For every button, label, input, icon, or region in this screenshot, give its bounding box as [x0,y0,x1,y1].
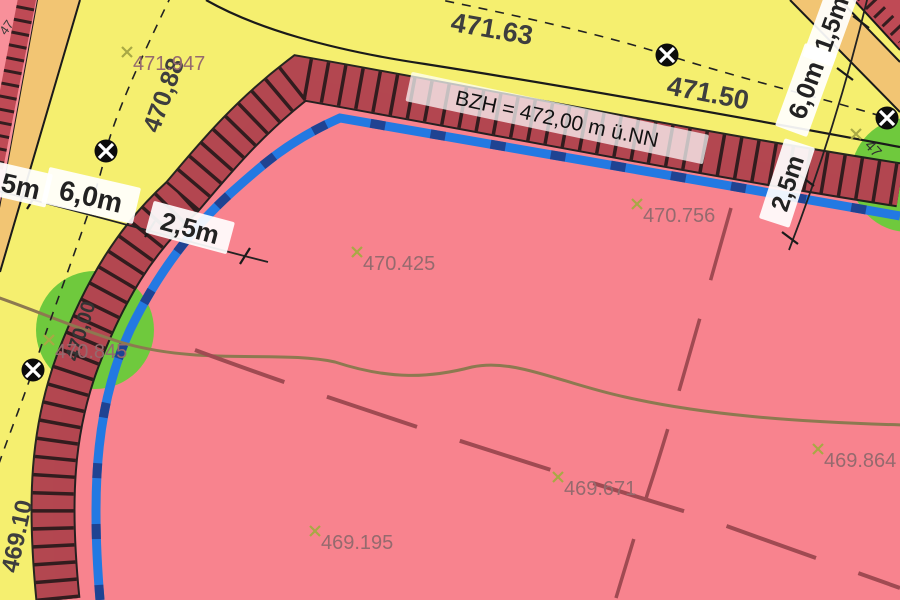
street-lamp-icon [22,359,45,382]
spot-height-text: 469.195 [321,532,393,554]
street-lamp-icon [95,140,118,163]
spot-height-text: 470.845 [55,341,127,363]
development-plan-canvas: 47 [0,0,900,600]
site-plan-map[interactable]: 47 [0,0,900,600]
spot-height-text: 469.671 [564,478,636,500]
street-lamp-icon [876,107,899,130]
spot-height-text: 471.947 [133,53,205,75]
street-lamp-icon [656,44,679,67]
spot-height-text: 470.756 [643,205,715,227]
spot-height-text: 469.864 [824,450,896,472]
spot-height-text: 470.425 [363,253,435,275]
